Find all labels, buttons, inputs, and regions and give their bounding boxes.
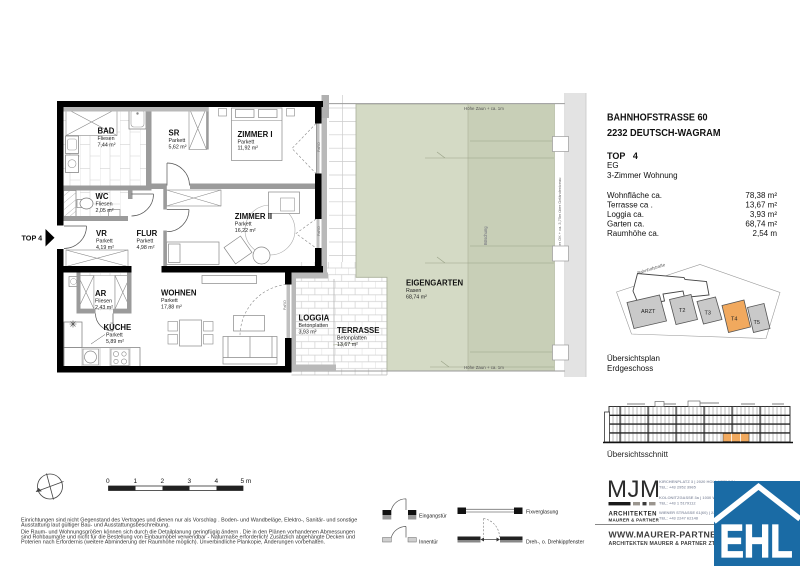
svg-text:ARZT: ARZT [641, 309, 656, 315]
svg-text:5,62 m²: 5,62 m² [169, 145, 187, 151]
svg-text:3-Zimmer Wohnung: 3-Zimmer Wohnung [607, 171, 678, 180]
svg-text:ZIMMER I: ZIMMER I [238, 130, 273, 139]
svg-text:Fliesen: Fliesen [96, 202, 113, 208]
svg-text:5,89 m²: 5,89 m² [106, 339, 124, 345]
svg-text:Parkett: Parkett [235, 222, 252, 228]
svg-text:TOP 4: TOP 4 [607, 151, 638, 161]
svg-text:Böschung: Böschung [483, 226, 488, 245]
svg-text:13,67 m²: 13,67 m² [745, 201, 777, 210]
svg-text:VR: VR [96, 229, 107, 238]
svg-text:KÜCHE: KÜCHE [104, 323, 132, 332]
svg-text:KOLONITZGASSE 3a | 1030 WIEN: KOLONITZGASSE 3a | 1030 WIEN [659, 495, 723, 500]
svg-text:Parkett: Parkett [169, 138, 186, 144]
svg-text:Betonplatten: Betonplatten [299, 323, 329, 329]
svg-text:EIGENGARTEN: EIGENGARTEN [406, 279, 464, 288]
svg-text:TEL: +43 2952 3965: TEL: +43 2952 3965 [659, 485, 697, 490]
svg-text:Wohnfläche ca.: Wohnfläche ca. [607, 191, 662, 200]
svg-text:4,98 m²: 4,98 m² [137, 245, 155, 251]
svg-text:Fliesen: Fliesen [98, 136, 115, 142]
svg-text:Betonplatten: Betonplatten [337, 336, 367, 342]
svg-text:Parkett: Parkett [161, 298, 178, 304]
svg-text:PaRO: PaRO [317, 226, 321, 236]
svg-text:3: 3 [188, 478, 192, 485]
svg-text:2,54 m: 2,54 m [753, 229, 778, 238]
svg-text:Parkett: Parkett [106, 333, 123, 339]
svg-text:3,93 m²: 3,93 m² [750, 210, 777, 219]
svg-text:0: 0 [106, 478, 110, 485]
svg-text:Parkett: Parkett [96, 239, 113, 245]
svg-text:LOGGIA: LOGGIA [299, 314, 330, 323]
svg-text:TEL: +43 1 5179112: TEL: +43 1 5179112 [659, 501, 696, 506]
svg-text:MJM: MJM [607, 476, 660, 503]
svg-text:BAHNHOFSTRASSE 60: BAHNHOFSTRASSE 60 [607, 112, 708, 124]
svg-text:Höhe Zaun + ca. 1m: Höhe Zaun + ca. 1m [464, 365, 504, 370]
svg-text:EG: EG [607, 161, 619, 170]
svg-text:Übersichtsschnitt: Übersichtsschnitt [607, 450, 669, 459]
svg-text:T3: T3 [705, 311, 711, 317]
svg-text:2,43 m²: 2,43 m² [95, 305, 113, 311]
svg-text:4,19 m²: 4,19 m² [96, 245, 114, 251]
svg-text:Innentür: Innentür [419, 540, 438, 546]
svg-text:11,92 m²: 11,92 m² [238, 146, 259, 152]
svg-text:68,74 m²: 68,74 m² [406, 295, 427, 301]
svg-text:Poterien nach Erfordernis (wei: Poterien nach Erfordernis (weitere Abmin… [21, 539, 326, 546]
svg-text:13,67 m²: 13,67 m² [337, 342, 358, 348]
svg-text:TERRASSE: TERRASSE [337, 326, 379, 335]
svg-text:Parkett: Parkett [238, 139, 255, 145]
svg-text:2,05 m²: 2,05 m² [96, 208, 114, 214]
svg-text:Fliesen: Fliesen [95, 299, 112, 305]
svg-text:PaRO: PaRO [317, 142, 321, 152]
svg-text:Eingangstür: Eingangstür [419, 514, 447, 520]
svg-text:Terrasse ca .: Terrasse ca . [607, 201, 653, 210]
svg-text:TOP 4: TOP 4 [22, 233, 43, 242]
svg-text:PaRO: PaRO [283, 300, 287, 310]
svg-text:TEL: +43 2247 62148: TEL: +43 2247 62148 [659, 516, 699, 521]
svg-text:FLUR: FLUR [137, 229, 158, 238]
svg-text:Loggia ca.: Loggia ca. [607, 210, 644, 219]
svg-text:16,22 m²: 16,22 m² [235, 228, 256, 234]
svg-text:AR: AR [95, 289, 107, 298]
svg-text:Parkett: Parkett [137, 239, 154, 245]
svg-text:Raumhöhe ca.: Raumhöhe ca. [607, 229, 659, 238]
svg-text:68,74 m²: 68,74 m² [745, 220, 777, 229]
svg-text:2: 2 [161, 478, 165, 485]
svg-text:5 m: 5 m [241, 478, 252, 485]
svg-text:Rasen: Rasen [406, 288, 421, 294]
svg-text:SR: SR [169, 129, 180, 138]
svg-text:Übersichtsplan: Übersichtsplan [607, 354, 660, 363]
svg-text:7,44 m²: 7,44 m² [98, 143, 116, 149]
svg-text:1: 1 [134, 478, 138, 485]
svg-text:3,93 m²: 3,93 m² [299, 330, 317, 336]
svg-text:78,38 m²: 78,38 m² [745, 191, 777, 200]
svg-text:Garten ca.: Garten ca. [607, 220, 644, 229]
svg-text:4: 4 [215, 478, 219, 485]
svg-text:Ausstattung laut gültiger Bau-: Ausstattung laut gültiger Bau- und Ausst… [21, 523, 170, 529]
svg-text:Fixverglasung: Fixverglasung [526, 510, 558, 516]
svg-text:T5: T5 [754, 320, 760, 326]
svg-text:ZIMMER II: ZIMMER II [235, 212, 272, 221]
svg-text:Mauer OK + ca. 3,75m über Gelä: Mauer OK + ca. 3,75m über Geländeniveau [557, 178, 562, 253]
svg-text:WC: WC [96, 192, 109, 201]
svg-text:Erdgeschoss: Erdgeschoss [607, 364, 653, 373]
svg-text:Höhe Zaun + ca. 1m: Höhe Zaun + ca. 1m [464, 106, 504, 111]
svg-text:T4: T4 [731, 317, 737, 323]
svg-text:17,88 m²: 17,88 m² [161, 305, 182, 311]
svg-text:MAURER & PARTNER: MAURER & PARTNER [609, 517, 660, 522]
svg-text:WOHNEN: WOHNEN [161, 289, 197, 298]
svg-text:BAD: BAD [98, 127, 115, 136]
svg-text:Dreh-, o. Drehkippfenster: Dreh-, o. Drehkippfenster [526, 540, 585, 546]
svg-text:2232 DEUTSCH-WAGRAM: 2232 DEUTSCH-WAGRAM [607, 127, 721, 139]
svg-text:T2: T2 [679, 308, 685, 314]
svg-text:EHL: EHL [720, 515, 793, 566]
